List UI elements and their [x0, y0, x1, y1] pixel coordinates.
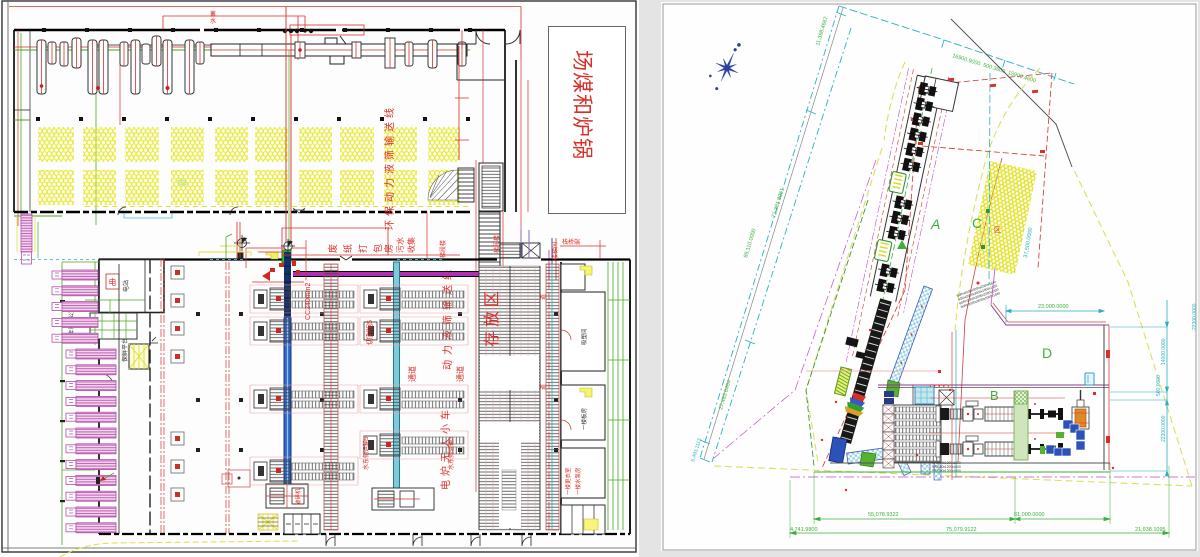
svg-text:水: 水 — [210, 17, 216, 25]
svg-text:500.0000: 500.0000 — [1156, 375, 1162, 396]
svg-text:通道: 通道 — [407, 366, 417, 382]
svg-text:蓄: 蓄 — [210, 10, 216, 18]
svg-text:吸塑间: 吸塑间 — [580, 328, 588, 345]
svg-text:切割锯5: 切割锯5 — [365, 320, 374, 345]
svg-text:81,000.0000: 81,000.0000 — [1014, 512, 1045, 518]
svg-text:水东侧运输5: 水东侧运输5 — [362, 436, 370, 470]
svg-text:C: C — [972, 215, 982, 231]
svg-text:A: A — [930, 216, 940, 232]
svg-text:一楼板房: 一楼板房 — [580, 407, 588, 430]
svg-text:包: 包 — [372, 244, 383, 253]
svg-text:水东侧运输3: 水东侧运输3 — [447, 436, 455, 470]
svg-text:动力液筛输送线: 动力液筛输送线 — [441, 265, 454, 370]
svg-text:破碎机: 破碎机 — [294, 488, 302, 505]
svg-text:收集: 收集 — [406, 237, 416, 253]
svg-text:22300.0000: 22300.0000 — [1161, 415, 1167, 442]
svg-text:楼梯间: 楼梯间 — [551, 242, 559, 260]
svg-text:电站: 电站 — [122, 280, 130, 292]
svg-text:22300.0000: 22300.0000 — [1192, 303, 1198, 330]
svg-text:4,741.9800: 4,741.9800 — [790, 527, 818, 533]
svg-text:D: D — [1042, 345, 1052, 361]
svg-text:B: B — [990, 388, 999, 403]
svg-text:污水: 污水 — [395, 237, 405, 253]
svg-text:梯段楼: 梯段楼 — [493, 235, 501, 253]
svg-text:环保动力液筛输送线: 环保动力液筛输送线 — [383, 104, 396, 230]
svg-text:21,938.1095: 21,938.1095 — [1135, 527, 1166, 533]
svg-text:纸: 纸 — [342, 244, 353, 253]
svg-text:14000.0000: 14000.0000 — [1161, 338, 1167, 365]
svg-text:75,079.9122: 75,079.9122 — [946, 527, 977, 533]
svg-text:23,000.0000: 23,000.0000 — [1038, 304, 1069, 310]
svg-text:房: 房 — [383, 244, 394, 253]
svg-text:栈桥端: 栈桥端 — [562, 238, 580, 246]
svg-text:通道: 通道 — [455, 366, 465, 382]
svg-text:打: 打 — [357, 244, 368, 253]
svg-text:保鲜平台: 保鲜平台 — [121, 338, 129, 362]
svg-text:场煤和炉锅: 场煤和炉锅 — [570, 50, 593, 160]
svg-text:存放区: 存放区 — [483, 287, 501, 347]
svg-text:区: 区 — [994, 226, 1001, 234]
svg-text:道: 道 — [539, 294, 547, 300]
svg-text:电: 电 — [109, 277, 117, 287]
svg-text:废: 废 — [327, 244, 338, 253]
svg-text:一楼更衣室: 一楼更衣室 — [564, 467, 572, 495]
svg-text:55,078.9322: 55,078.9322 — [868, 512, 899, 518]
svg-text:CC240mm2: CC240mm2 — [305, 283, 312, 320]
svg-text:道: 道 — [539, 384, 547, 390]
svg-text:一楼水泵房: 一楼水泵房 — [574, 467, 582, 495]
